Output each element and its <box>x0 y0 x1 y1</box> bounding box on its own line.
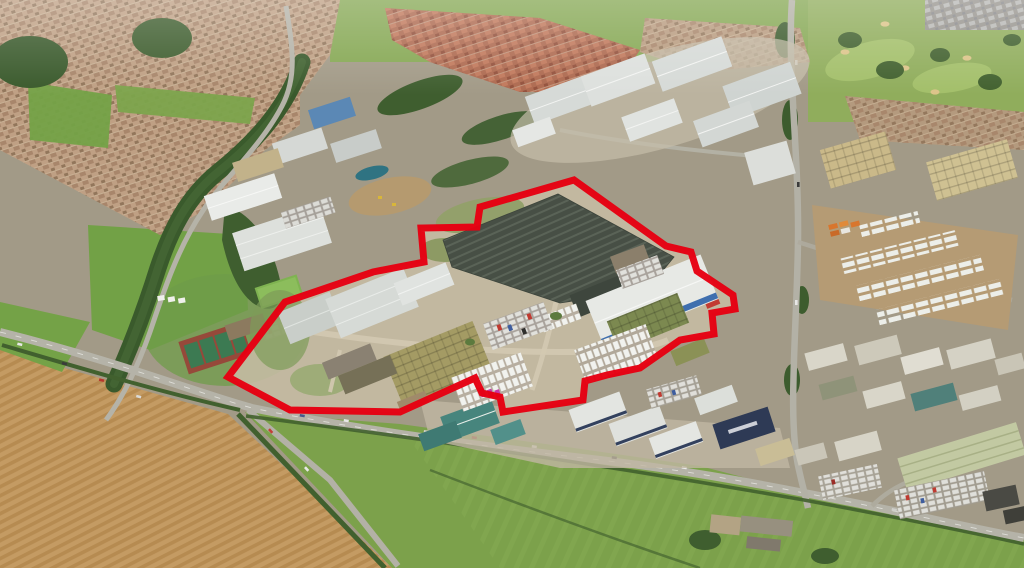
field-trees <box>811 548 839 564</box>
haze-overlay <box>0 0 1024 95</box>
digger <box>378 196 382 199</box>
screenshot-root <box>0 0 1024 568</box>
aerial-photo <box>0 0 1024 568</box>
farm-trees <box>689 530 721 550</box>
digger <box>392 203 396 206</box>
